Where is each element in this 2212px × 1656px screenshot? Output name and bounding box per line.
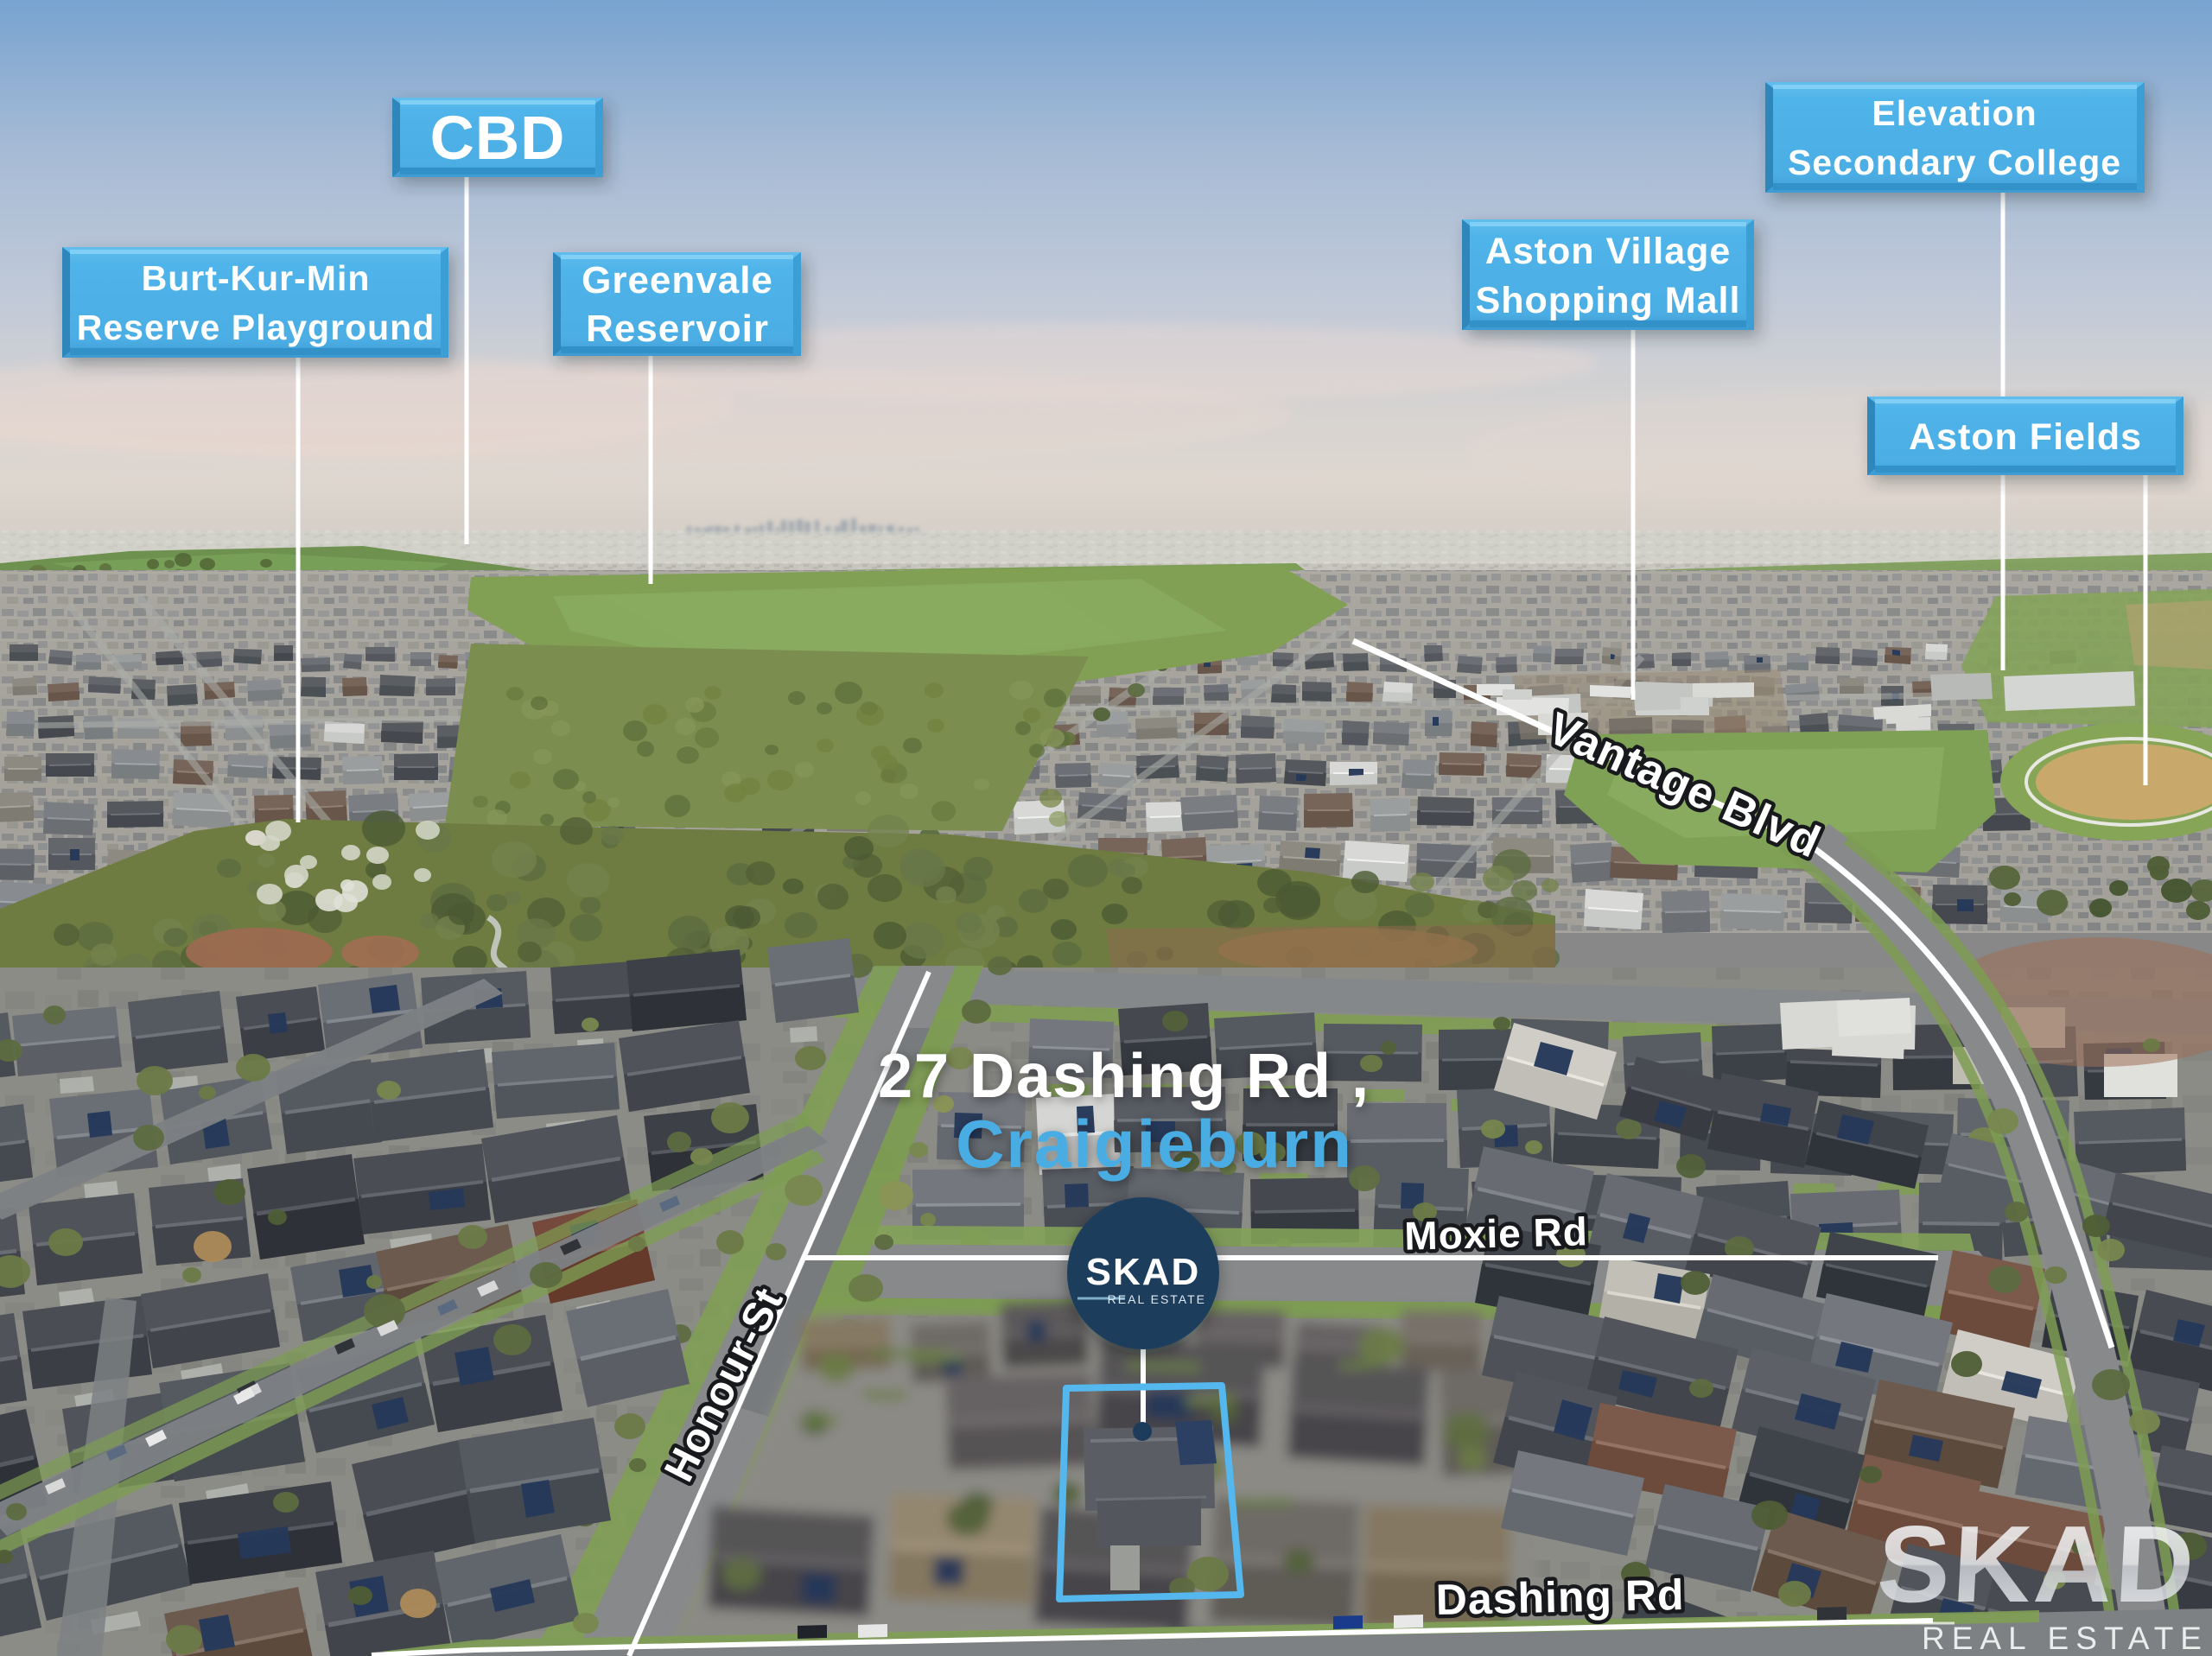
svg-text:REAL ESTATE: REAL ESTATE (1108, 1292, 1206, 1306)
svg-text:SKAD: SKAD (1086, 1251, 1201, 1293)
svg-text:Greenvale: Greenvale (582, 259, 773, 301)
svg-text:SKAD: SKAD (1874, 1503, 2199, 1625)
svg-text:Reservoir: Reservoir (586, 308, 769, 350)
svg-text:REAL ESTATE: REAL ESTATE (1922, 1621, 2209, 1656)
svg-text:Reserve Playground: Reserve Playground (77, 308, 435, 347)
svg-text:Secondary College: Secondary College (1788, 143, 2121, 182)
svg-text:Aston Village: Aston Village (1485, 231, 1732, 272)
svg-text:Craigieburn: Craigieburn (956, 1106, 1353, 1182)
svg-text:Aston Fields: Aston Fields (1909, 416, 2142, 458)
svg-text:Elevation: Elevation (1872, 93, 2037, 133)
svg-text:CBD: CBD (430, 105, 566, 173)
svg-text:Dashing Rd: Dashing Rd (1435, 1570, 1685, 1624)
svg-text:Shopping Mall: Shopping Mall (1476, 280, 1741, 321)
svg-text:Moxie Rd: Moxie Rd (1404, 1209, 1589, 1259)
svg-text:27 Dashing Rd ,: 27 Dashing Rd , (878, 1042, 1370, 1111)
svg-text:Burt-Kur-Min: Burt-Kur-Min (142, 258, 371, 298)
